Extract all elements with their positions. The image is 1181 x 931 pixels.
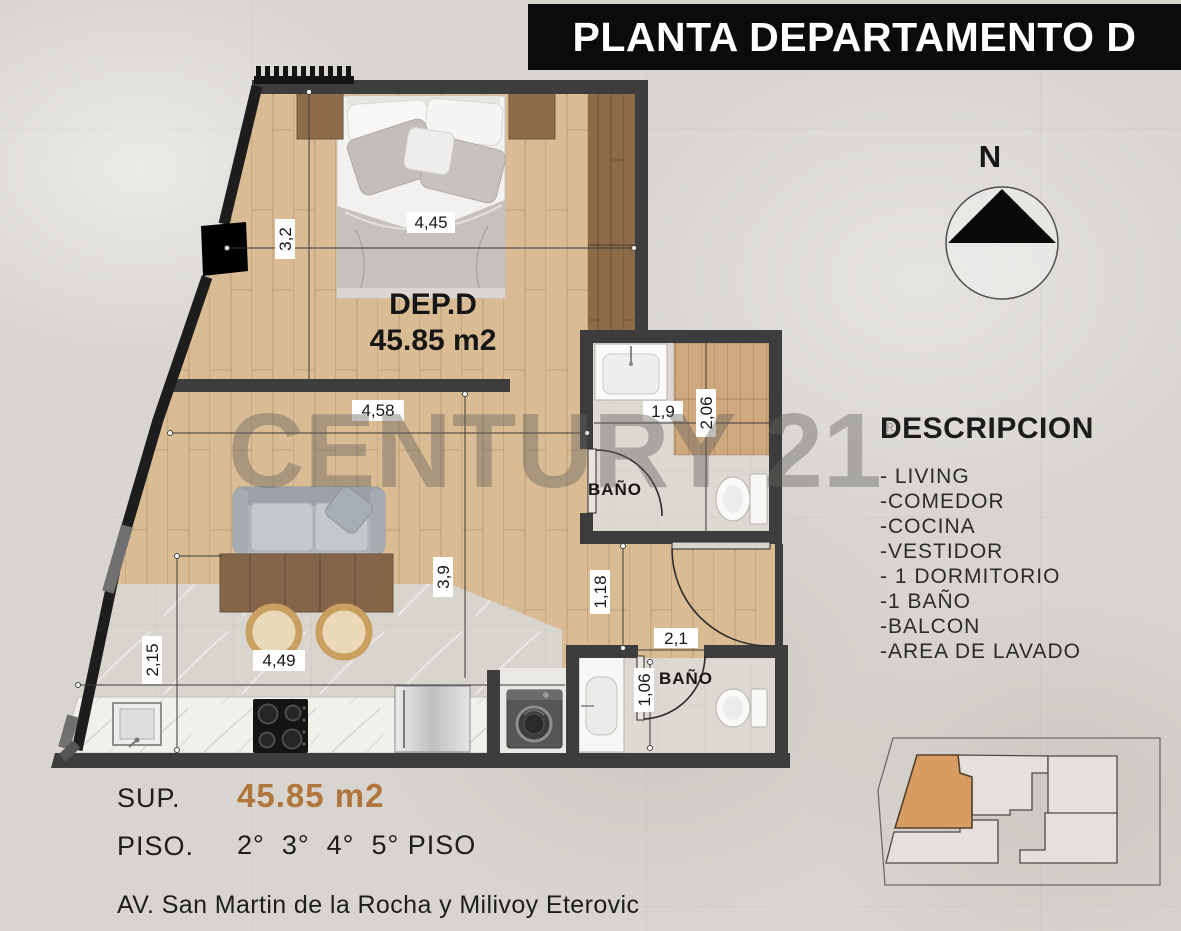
- bathroom2-toilet: [716, 689, 767, 727]
- svg-text:2,15: 2,15: [143, 643, 162, 676]
- surface-label: SUP.: [117, 783, 181, 814]
- dim-kitchen-height: 2,15: [142, 636, 162, 684]
- nightstand-right: [509, 93, 555, 139]
- svg-text:2,06: 2,06: [697, 396, 716, 429]
- svg-text:4,49: 4,49: [262, 651, 295, 670]
- bed: [337, 96, 507, 298]
- bathroom1-washbasin: [595, 344, 667, 400]
- dim-bedroom-height: 3,2: [275, 219, 295, 259]
- description-item: - LIVING: [880, 464, 1180, 489]
- unit-area-label: 45.85 m2: [370, 324, 497, 357]
- svg-text:4,45: 4,45: [414, 213, 447, 232]
- key-plan-unit-c: [1048, 756, 1117, 814]
- bathroom1-toilet: [716, 474, 767, 524]
- description-item: - 1 DORMITORIO: [880, 564, 1180, 589]
- floor-value: 2° 3° 4° 5° PISO: [237, 830, 476, 861]
- dim-hall-height: 1,18: [590, 570, 610, 614]
- title-banner: PLANTA DEPARTAMENTO D: [528, 4, 1181, 70]
- description-item: -VESTIDOR: [880, 539, 1180, 564]
- dining-table: [220, 554, 393, 612]
- svg-text:N: N: [979, 139, 1001, 174]
- dim-living-width: 4,58: [352, 400, 404, 421]
- address-line: AV. San Martin de la Rocha y Milivoy Ete…: [117, 891, 639, 920]
- unit-name-label: DEP.D: [389, 288, 477, 321]
- svg-text:2,1: 2,1: [664, 629, 688, 648]
- bathroom2-washbasin: [579, 657, 624, 752]
- surface-value: 45.85 m2: [237, 777, 384, 815]
- page-title: PLANTA DEPARTAMENTO D: [573, 14, 1137, 61]
- dim-living-height: 3,9: [433, 557, 453, 597]
- refrigerator: [395, 686, 470, 752]
- wardrobe-strip: [588, 92, 635, 332]
- dim-bath2-width: 2,1: [654, 628, 698, 648]
- description-heading: DESCRIPCION: [880, 412, 1180, 446]
- svg-text:1,9: 1,9: [651, 402, 675, 421]
- description-panel: DESCRIPCION - LIVING -COMEDOR -COCINA -V…: [880, 412, 1180, 664]
- chair: [249, 607, 299, 657]
- description-item: -BALCON: [880, 614, 1180, 639]
- kitchen-sink: [113, 703, 161, 747]
- svg-text:1,06: 1,06: [635, 673, 654, 706]
- description-item: -AREA DE LAVADO: [880, 639, 1180, 664]
- nightstand-left: [297, 93, 343, 139]
- dim-kitchen-width: 4,49: [253, 650, 305, 671]
- dim-bath1-height: 2,06: [696, 389, 716, 437]
- north-arrow-icon: N: [946, 139, 1058, 299]
- cooktop: [253, 699, 308, 753]
- key-plan-unit-f: [1020, 813, 1117, 863]
- chair: [319, 607, 369, 657]
- svg-text:4,58: 4,58: [361, 401, 394, 420]
- key-plan: [878, 738, 1160, 885]
- dim-bath2-height: 1,06: [634, 668, 654, 712]
- washing-machine: [507, 690, 562, 748]
- bathroom2-label: BAÑO: [659, 668, 713, 688]
- dim-bedroom-width: 4,45: [407, 212, 455, 233]
- dim-bath1-width: 1,9: [643, 401, 683, 421]
- description-item: -COMEDOR: [880, 489, 1180, 514]
- description-item: -COCINA: [880, 514, 1180, 539]
- flyer-page: 4,45 3,2 4,58 1,9 2,06 3,9 1,18 2,1: [0, 0, 1181, 931]
- floor-label: PISO.: [117, 831, 194, 862]
- bathroom1-label: BAÑO: [588, 479, 642, 499]
- svg-text:1,18: 1,18: [591, 575, 610, 608]
- balcony-railing: [254, 66, 354, 84]
- svg-text:3,2: 3,2: [276, 227, 295, 251]
- svg-text:3,9: 3,9: [434, 565, 453, 589]
- description-list: - LIVING -COMEDOR -COCINA -VESTIDOR - 1 …: [880, 464, 1180, 664]
- description-item: -1 BAÑO: [880, 589, 1180, 614]
- sofa: [233, 484, 385, 555]
